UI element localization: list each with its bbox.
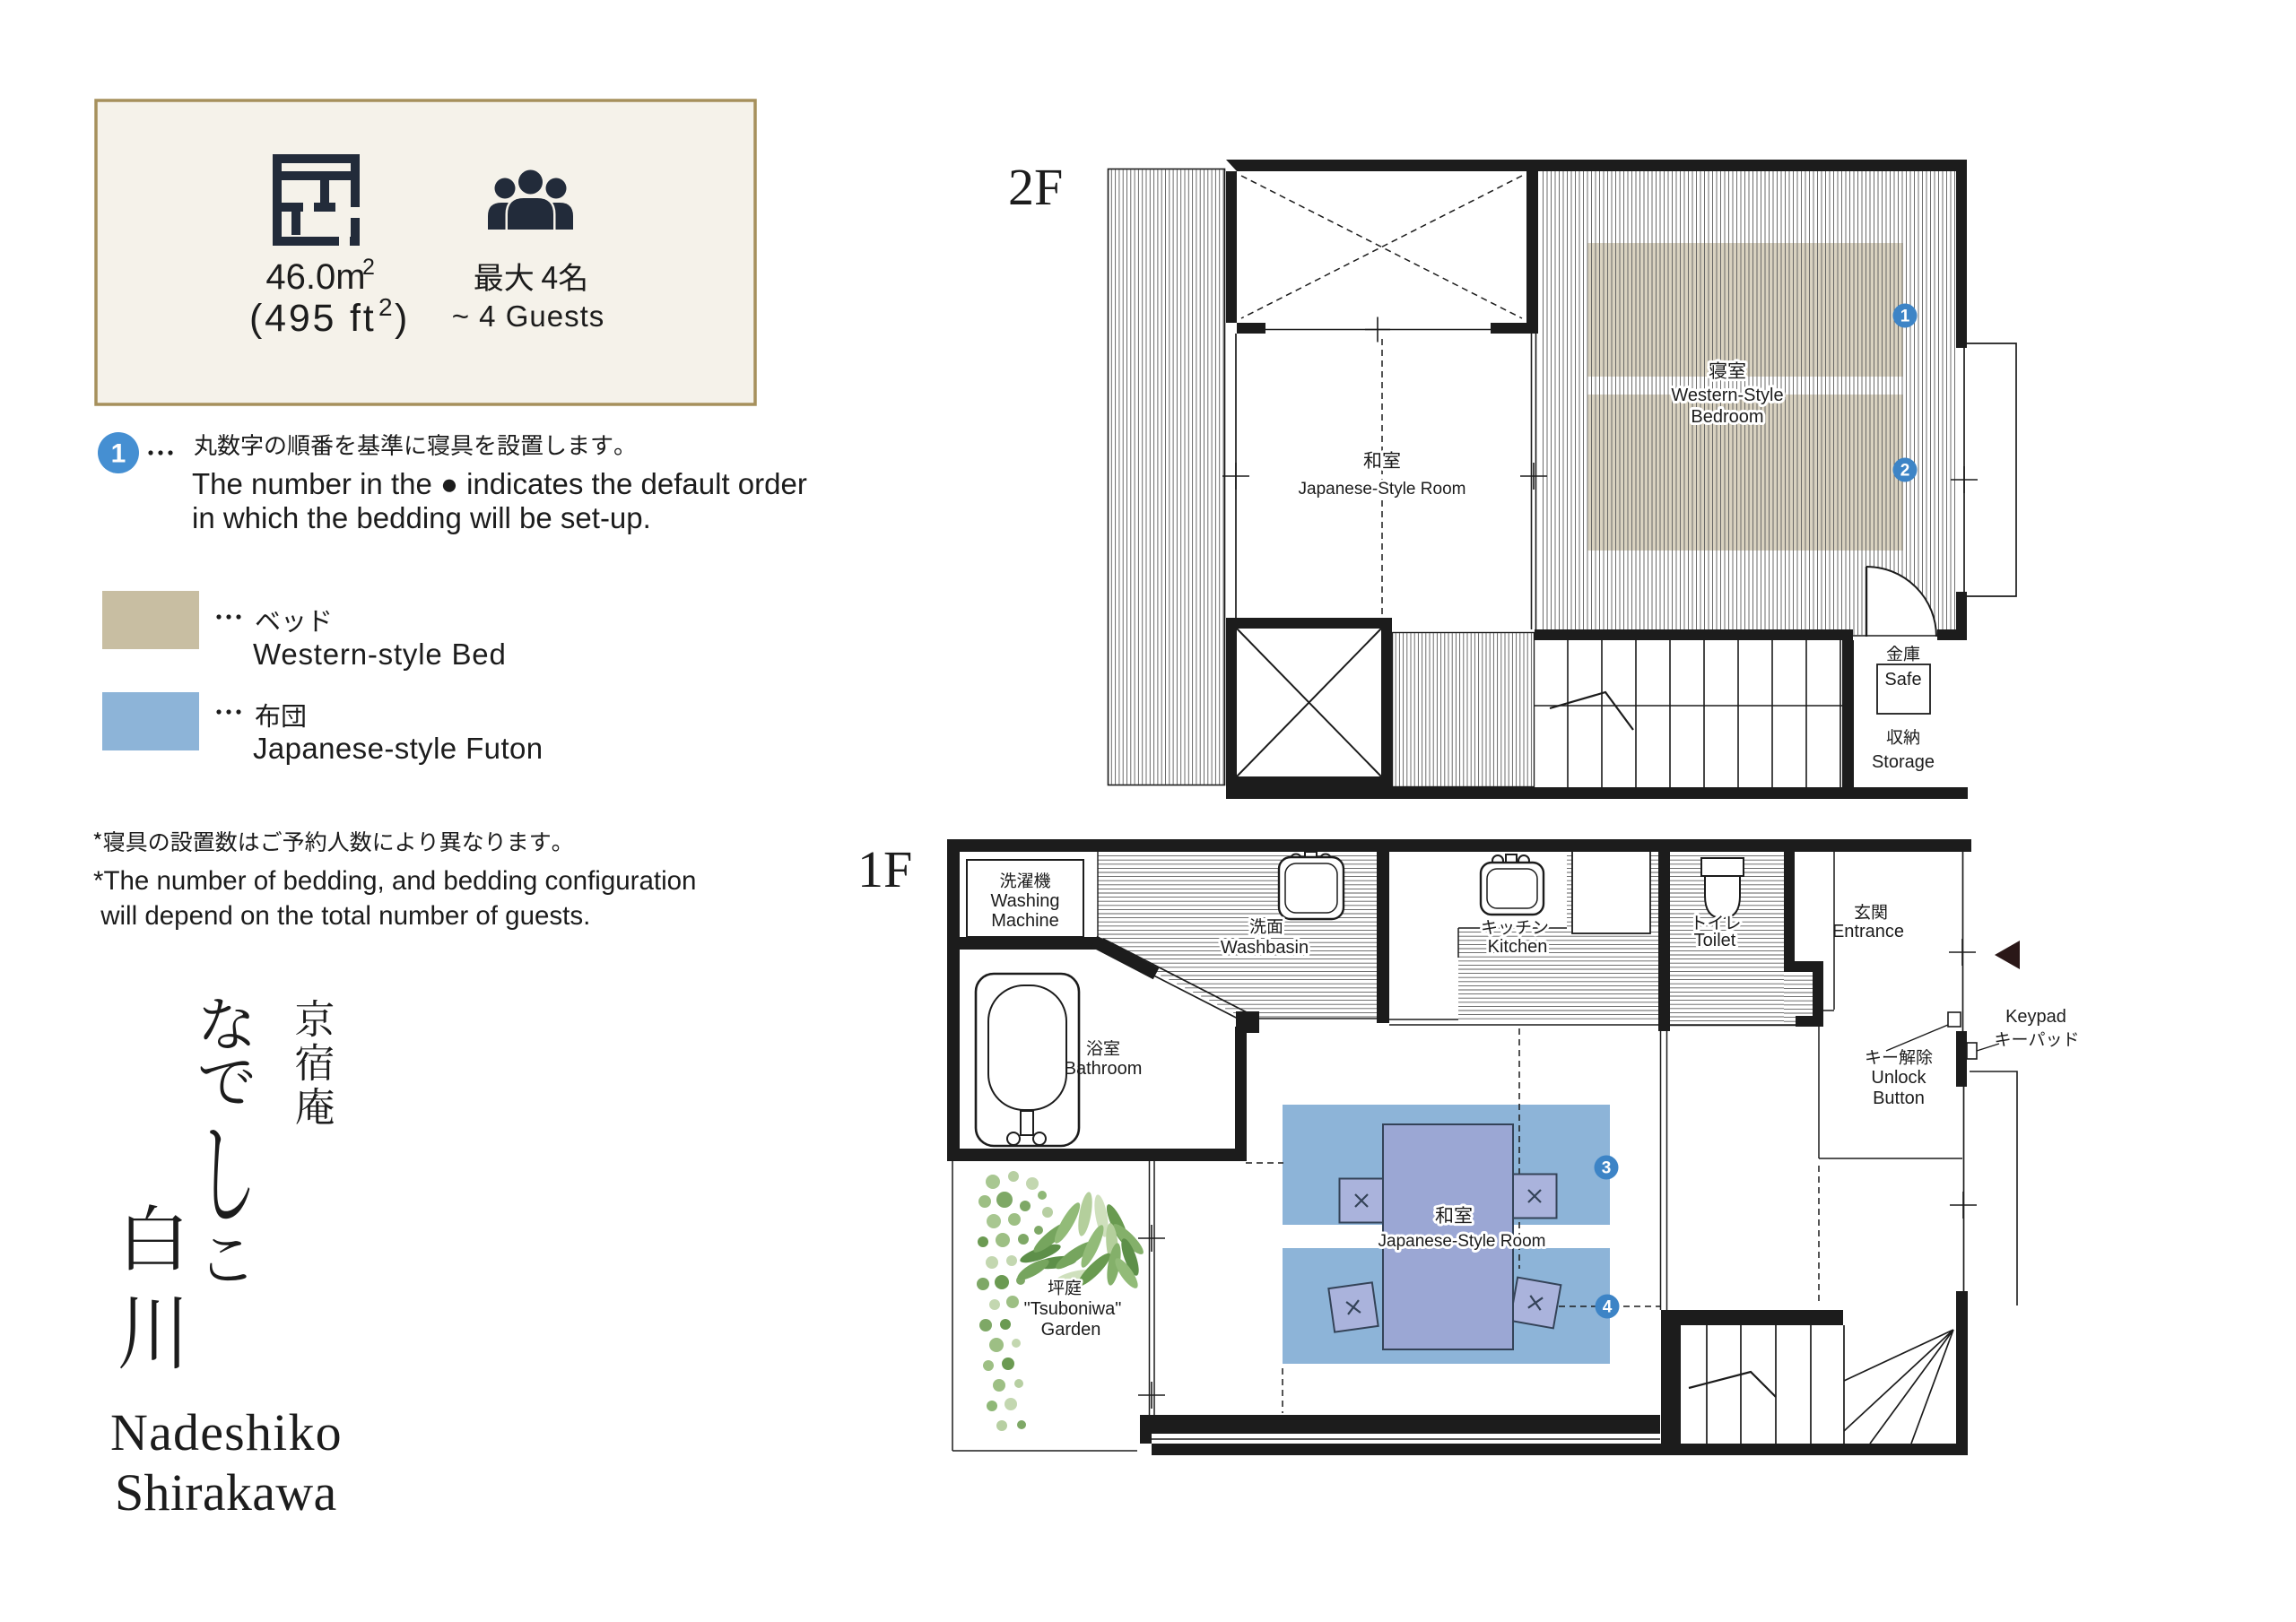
svg-text:Bedroom: Bedroom [1691, 407, 1763, 427]
svg-text:Storage: Storage [1872, 752, 1935, 772]
svg-text:): ) [395, 297, 407, 340]
svg-text:1F: 1F [857, 840, 912, 898]
svg-text:"Tsuboniwa": "Tsuboniwa" [1024, 1299, 1122, 1319]
svg-text:1: 1 [1900, 308, 1910, 326]
svg-text:2: 2 [362, 255, 375, 280]
svg-text:in which the bedding will be s: in which the bedding will be set-up. [192, 501, 651, 534]
svg-text:1: 1 [111, 439, 126, 469]
svg-text:Japanese-Style Room: Japanese-Style Room [1299, 480, 1466, 499]
svg-text:Washing: Washing [990, 891, 1059, 911]
svg-text:2F: 2F [1008, 158, 1063, 216]
svg-text:3: 3 [1602, 1159, 1612, 1178]
svg-text:*The number of bedding, and be: *The number of bedding, and bedding conf… [93, 866, 696, 896]
svg-text:will depend on the total numbe: will depend on the total number of guest… [93, 901, 590, 931]
svg-text:46.0m: 46.0m [265, 257, 365, 297]
svg-text:Button: Button [1873, 1089, 1925, 1108]
svg-text:4: 4 [1603, 1298, 1613, 1317]
svg-text:2: 2 [378, 293, 393, 321]
svg-text:Kitchen: Kitchen [1488, 937, 1548, 957]
svg-text:Western-Style: Western-Style [1671, 386, 1783, 405]
svg-text:Bathroom: Bathroom [1065, 1059, 1143, 1079]
svg-text:Entrance: Entrance [1832, 922, 1904, 941]
svg-text:Toilet: Toilet [1694, 931, 1736, 950]
svg-text:The number in the ● indicates: The number in the ● indicates the defaul… [192, 467, 807, 500]
svg-text:2: 2 [1900, 462, 1910, 481]
svg-text:Nadeshiko: Nadeshiko [110, 1403, 343, 1462]
svg-text:(495 ft: (495 ft [249, 297, 377, 340]
svg-text:Shirakawa: Shirakawa [115, 1463, 337, 1522]
svg-text:Unlock: Unlock [1871, 1068, 1926, 1088]
svg-text:Japanese-Style Room: Japanese-Style Room [1378, 1232, 1546, 1251]
svg-text:Machine: Machine [991, 911, 1059, 931]
svg-text:Western-style Bed: Western-style Bed [253, 638, 507, 671]
svg-text:Keypad: Keypad [2005, 1007, 2066, 1027]
svg-text:Japanese-style Futon: Japanese-style Futon [253, 732, 544, 765]
svg-text:~ 4 Guests: ~ 4 Guests [452, 299, 605, 333]
svg-text:Washbasin: Washbasin [1221, 938, 1309, 958]
svg-text:Safe: Safe [1884, 670, 1921, 690]
svg-text:Garden: Garden [1041, 1320, 1101, 1340]
